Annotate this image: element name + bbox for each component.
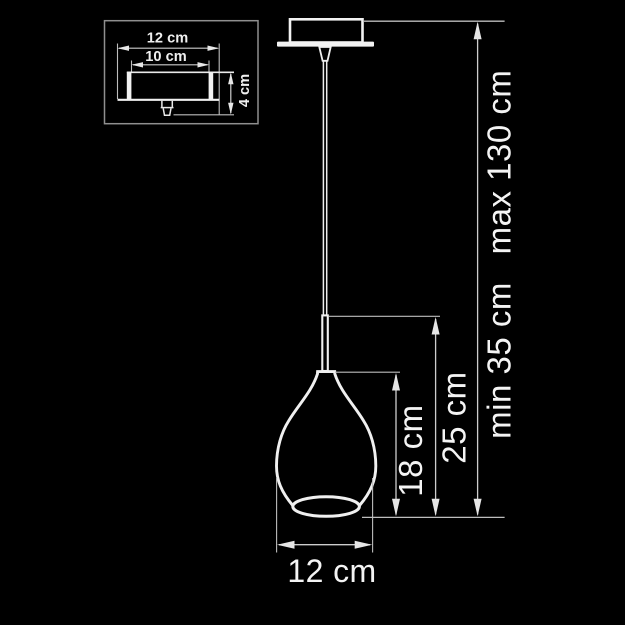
svg-text:4 cm: 4 cm [237,74,253,107]
svg-text:12 cm: 12 cm [287,553,376,589]
svg-text:max 130 cm: max 130 cm [481,70,518,255]
svg-text:18 cm: 18 cm [392,404,429,496]
svg-text:12 cm: 12 cm [147,31,188,47]
svg-text:10 cm: 10 cm [145,49,186,65]
svg-text:25 cm: 25 cm [436,371,473,463]
svg-text:min 35 cm: min 35 cm [481,282,518,439]
